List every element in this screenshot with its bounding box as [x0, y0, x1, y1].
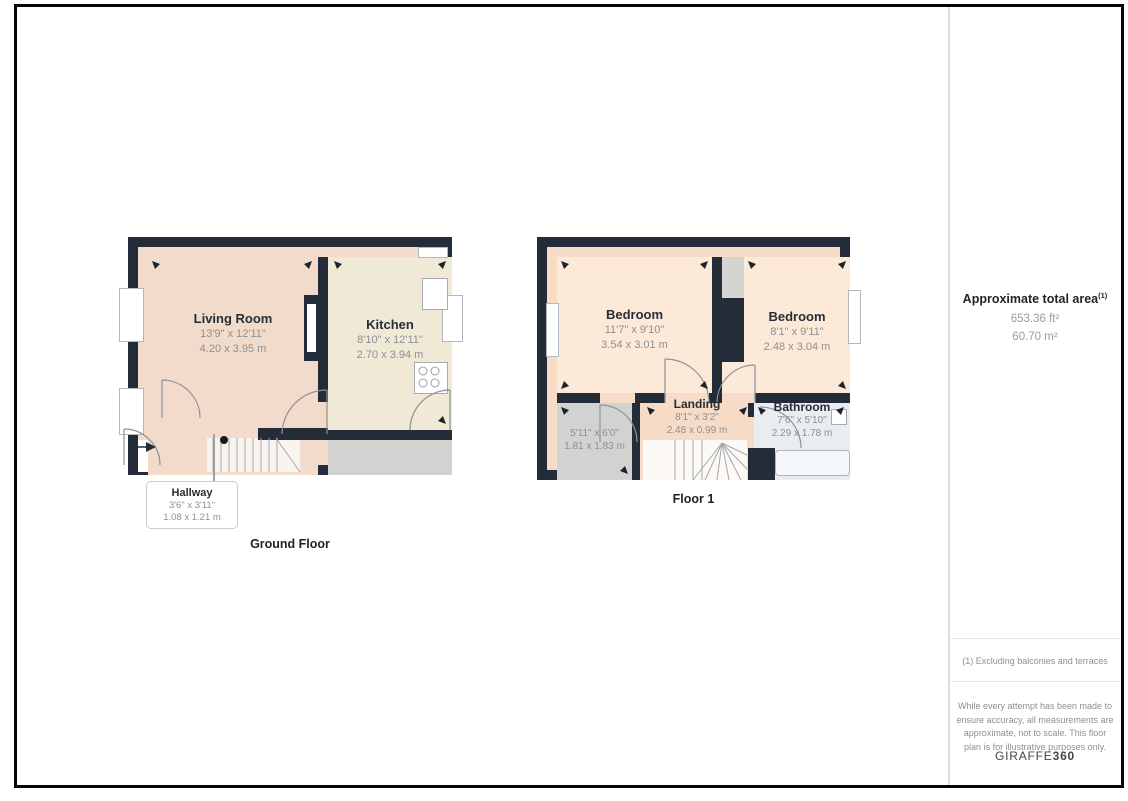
footnote: (1) Excluding balconies and terraces: [949, 655, 1121, 669]
ground-floor-title: Ground Floor: [128, 537, 452, 551]
hallway-callout: Hallway 3'6" x 3'11" 1.08 x 1.21 m: [146, 481, 238, 529]
floorplan-canvas: { "floor_plans": [ { "label": "Ground Fl…: [0, 0, 1128, 801]
corner-ticks: [561, 261, 846, 474]
divider: [949, 638, 1121, 639]
entrance-arrow-icon: [130, 442, 156, 452]
total-area-ft: 653.36 ft²: [949, 310, 1121, 328]
door-arcs: [600, 359, 801, 448]
hallway-measure-dot: [220, 436, 228, 444]
room-dims-imperial: 3'6" x 3'11": [149, 500, 235, 512]
total-area-m: 60.70 m²: [949, 328, 1121, 346]
disclaimer: While every attempt has been made to ens…: [956, 700, 1114, 754]
ground-floor-plan: Living Room 13'9" x 12'11" 4.20 x 3.95 m…: [128, 237, 452, 475]
giraffe360-logo: GIRAFFE360: [949, 749, 1121, 763]
floor1-title: Floor 1: [537, 492, 850, 506]
room-dims-metric: 1.08 x 1.21 m: [149, 512, 235, 524]
winder-stairs: [675, 440, 747, 480]
total-area-footnote-marker: (1): [1098, 291, 1107, 300]
stove-burners: [419, 367, 439, 387]
callout-leader-line: [213, 434, 215, 481]
room-name: Hallway: [149, 486, 235, 500]
total-area-title: Approximate total area(1): [949, 291, 1121, 306]
brand-name: GIRAFFE: [995, 749, 1053, 763]
ground-overlay: [118, 247, 462, 485]
floor1-plan: Bedroom 11'7" x 9'10" 3.54 x 3.01 m Bedr…: [537, 237, 850, 480]
divider: [949, 681, 1121, 682]
door-arcs: [124, 380, 450, 465]
total-area-title-text: Approximate total area: [963, 292, 1098, 306]
floor1-overlay: [547, 247, 860, 490]
brand-suffix: 360: [1053, 749, 1075, 763]
